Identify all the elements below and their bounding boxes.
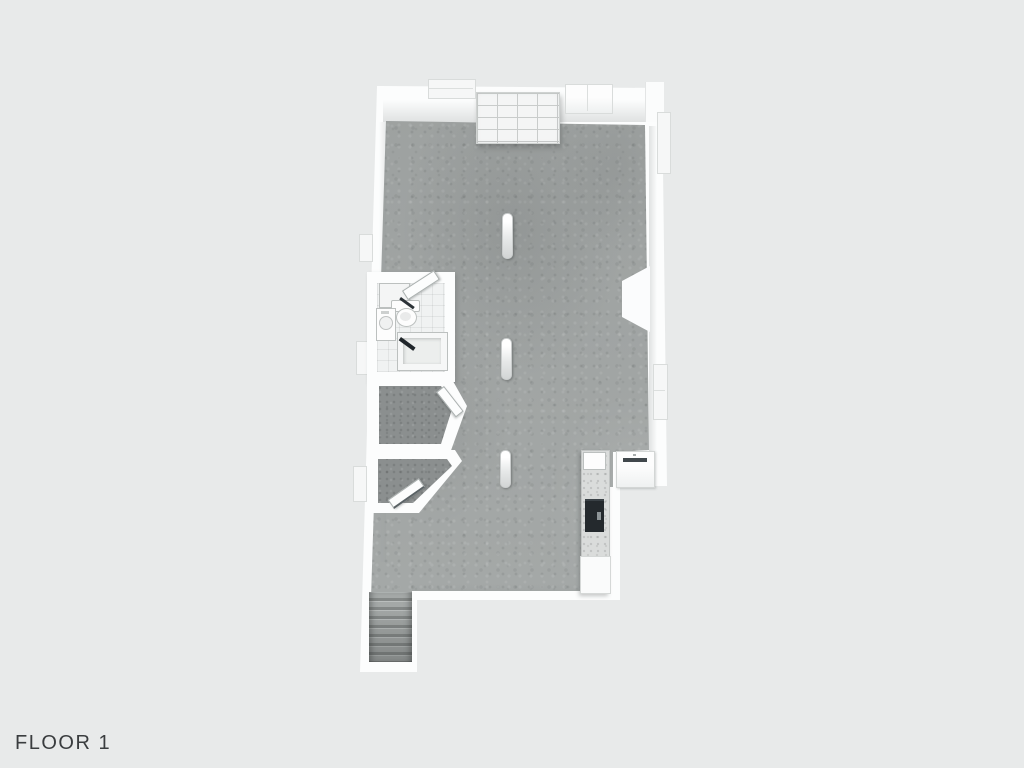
sink-faucet <box>381 311 389 314</box>
range-handle <box>597 512 601 520</box>
sink-vanity <box>376 308 396 341</box>
support-column-2 <box>501 338 512 380</box>
window-right-upper <box>657 112 671 174</box>
floor-label: FLOOR 1 <box>15 732 111 755</box>
sink-bowl <box>379 316 393 330</box>
window-mullion <box>587 85 588 111</box>
toilet-bowl <box>396 308 417 327</box>
window-top-right <box>565 84 613 114</box>
support-column-3 <box>500 450 511 488</box>
kitchen-range <box>585 499 604 532</box>
bathtub <box>397 332 448 371</box>
window-mullion <box>654 390 665 391</box>
kitchen-appliance <box>616 451 655 488</box>
kitchen-sink <box>583 452 606 470</box>
window-right-lower <box>653 364 668 420</box>
support-column-1 <box>502 213 513 259</box>
floorplan-canvas: FLOOR 1 <box>0 0 1024 768</box>
appliance-knob <box>633 454 636 456</box>
staircase <box>369 592 412 662</box>
window-top-left <box>428 79 476 99</box>
toilet-seat <box>400 312 411 321</box>
window-mullion <box>429 88 473 89</box>
staircase-shading <box>369 592 412 662</box>
kitchen-base-cabinet <box>580 556 611 594</box>
appliance-vent-slot <box>623 458 647 462</box>
shelving-unit <box>476 92 560 144</box>
window-left-lower <box>353 466 367 502</box>
window-left-upper <box>359 234 373 262</box>
